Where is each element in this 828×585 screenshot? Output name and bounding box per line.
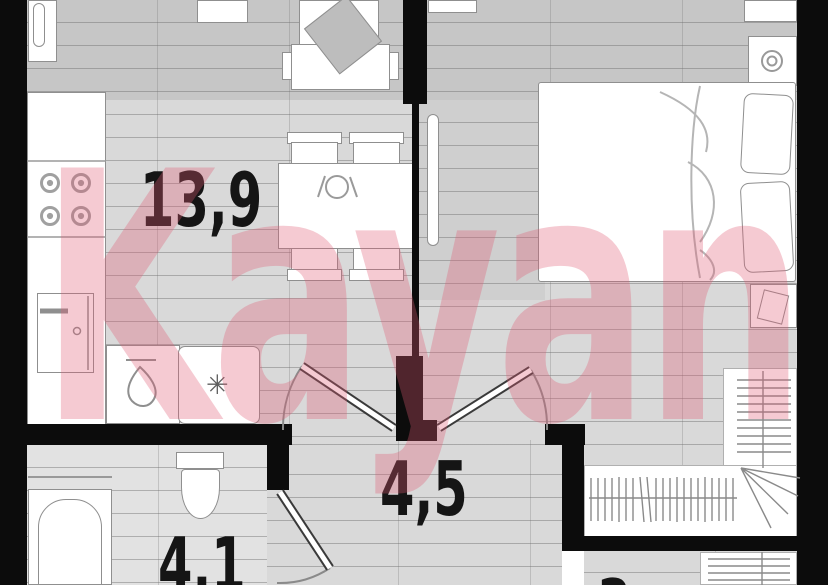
wall-left xyxy=(0,0,27,585)
wall-hall-right-top xyxy=(545,424,585,445)
chair xyxy=(287,269,342,281)
chair xyxy=(353,247,400,271)
pillow xyxy=(740,181,795,273)
wall-divider-thin xyxy=(412,100,419,360)
radiator-icon xyxy=(427,114,439,246)
shelf-unit xyxy=(700,552,797,585)
fridge-icon xyxy=(37,293,94,373)
sofa-armrest-right xyxy=(389,52,399,80)
wall-hall-stub-base xyxy=(396,420,437,441)
wall-hall-right xyxy=(562,445,584,550)
sink-counter xyxy=(106,345,180,424)
area-label-kitchen-living: 13,9 xyxy=(140,163,262,238)
pillow xyxy=(740,93,794,176)
wardrobe-top xyxy=(744,0,797,22)
chair xyxy=(291,247,338,271)
wall-divider-thick xyxy=(403,0,427,104)
kitchen-counter xyxy=(27,92,106,430)
wardrobe-horizontal-section xyxy=(584,465,797,538)
chair xyxy=(349,269,404,281)
asterisk-icon: ✳ xyxy=(206,372,229,399)
wall-right xyxy=(797,0,828,585)
toilet-tank xyxy=(176,452,224,469)
wall-bedroom-bottom xyxy=(562,536,797,551)
bath-shelf xyxy=(28,476,112,478)
area-label-adjacent-room-partial: 3, xyxy=(597,570,650,585)
radiator-icon xyxy=(33,3,45,47)
wall-bath-door-stub xyxy=(267,445,289,490)
dining-table xyxy=(278,163,415,249)
bathtub-inner xyxy=(38,499,102,585)
window-top-kitchen xyxy=(197,0,248,23)
wall-hall-stub xyxy=(396,356,423,424)
window-top-bedroom-left xyxy=(428,0,477,13)
area-label-bathroom: 4,1 xyxy=(158,528,246,585)
floor-plan: ✳ xyxy=(0,0,828,585)
area-label-hallway: 4,5 xyxy=(380,452,468,527)
wall-hall-left xyxy=(26,424,292,445)
nightstand xyxy=(748,36,797,86)
